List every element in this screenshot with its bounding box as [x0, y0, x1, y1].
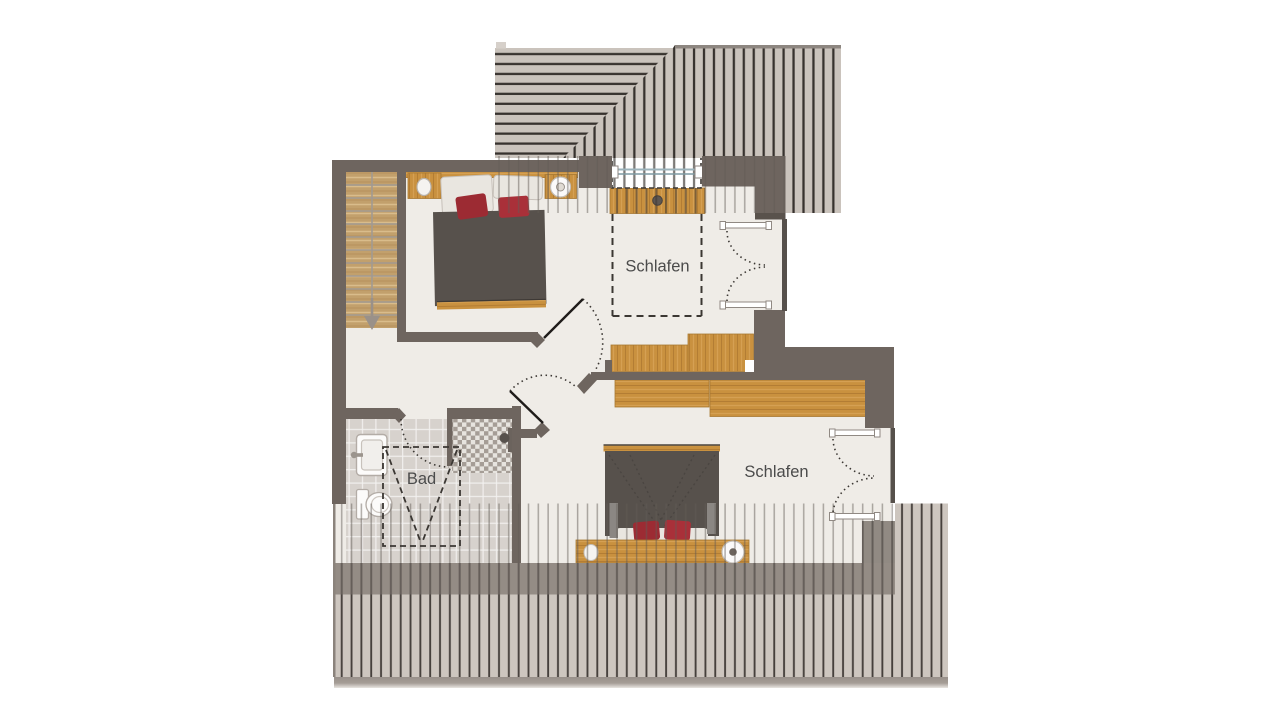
svg-text:Schlafen: Schlafen	[744, 463, 808, 481]
svg-text:Schlafen: Schlafen	[625, 258, 689, 276]
svg-text:Bad: Bad	[407, 470, 436, 488]
